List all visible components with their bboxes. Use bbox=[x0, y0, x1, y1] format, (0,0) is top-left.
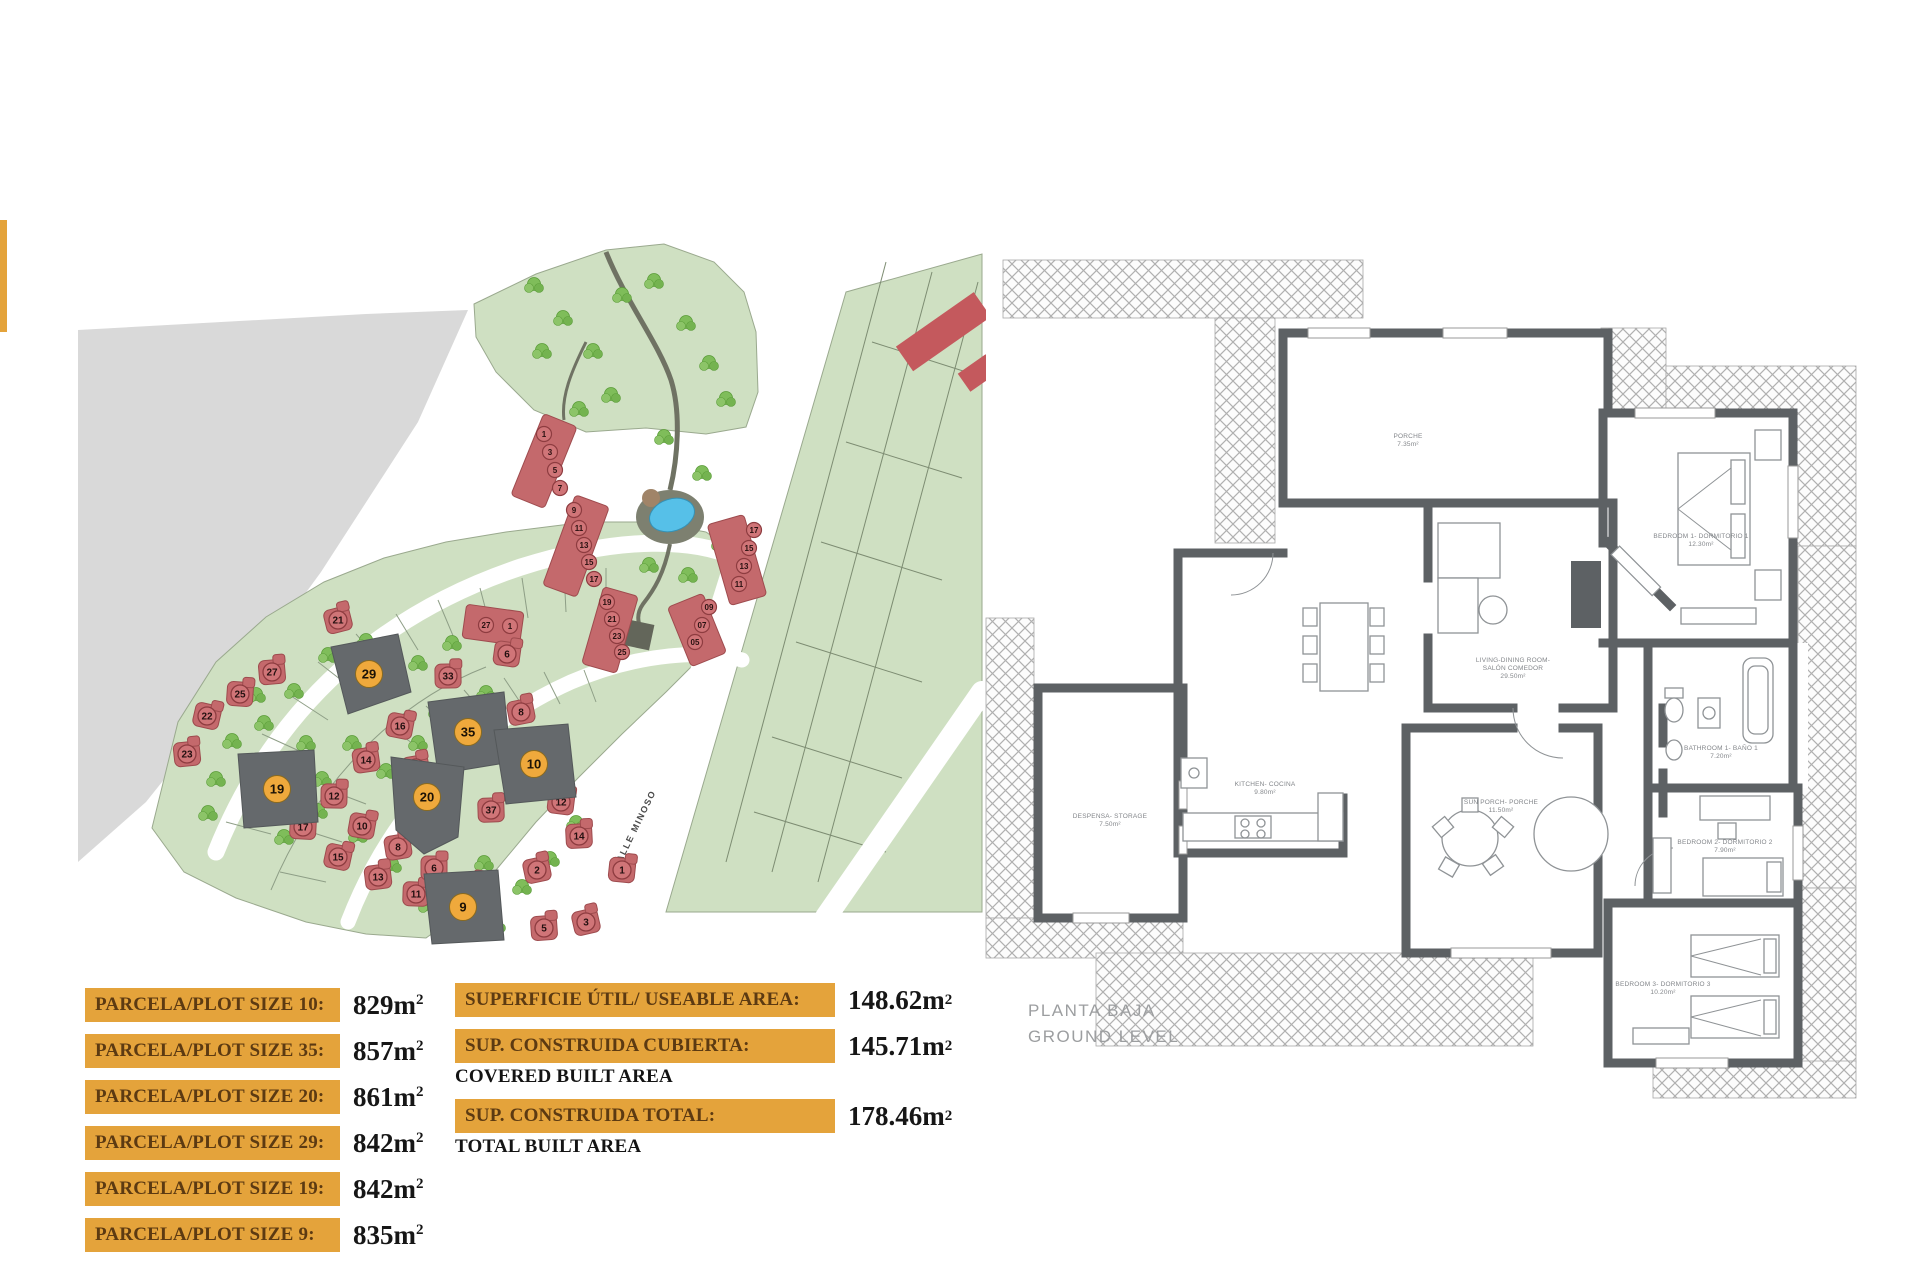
svg-text:11: 11 bbox=[411, 889, 422, 900]
svg-text:13: 13 bbox=[740, 562, 749, 571]
svg-text:09: 09 bbox=[705, 603, 714, 612]
svg-text:33: 33 bbox=[442, 671, 454, 682]
plot-size-row: PARCELA/PLOT SIZE 19: 842m2 bbox=[85, 1172, 545, 1206]
svg-text:19: 19 bbox=[603, 598, 612, 607]
townhouse-unit-21: 21 bbox=[605, 612, 620, 627]
svg-text:9: 9 bbox=[459, 900, 466, 915]
plot-size-label: PARCELA/PLOT SIZE 35: bbox=[85, 1034, 340, 1068]
house-marker-3: 3 bbox=[571, 902, 602, 936]
svg-text:6: 6 bbox=[431, 863, 437, 874]
svg-text:3: 3 bbox=[583, 917, 589, 928]
townhouse-unit-09: 09 bbox=[702, 600, 717, 615]
svg-text:35: 35 bbox=[461, 725, 475, 740]
townhouse-unit-5: 5 bbox=[548, 463, 563, 478]
plan-title-line2: GROUND LEVEL bbox=[1028, 1027, 1179, 1046]
svg-text:11: 11 bbox=[735, 580, 744, 589]
plot-size-label: PARCELA/PLOT SIZE 20: bbox=[85, 1080, 340, 1114]
townhouse-unit-27: 27 bbox=[479, 618, 494, 633]
area-label: SUP. CONSTRUIDA CUBIERTA: bbox=[455, 1029, 835, 1063]
svg-text:21: 21 bbox=[608, 615, 617, 624]
area-row: SUP. CONSTRUIDA CUBIERTA: 145.71m2 COVER… bbox=[455, 1029, 995, 1088]
site-plan-map: CALLE MINOSO 135791113151719212325171513… bbox=[66, 222, 986, 950]
plot-size-label: PARCELA/PLOT SIZE 10: bbox=[85, 988, 340, 1022]
tree-icon bbox=[693, 466, 712, 481]
highlighted-plot-19: 19 bbox=[238, 750, 318, 828]
svg-text:10: 10 bbox=[356, 821, 368, 832]
svg-text:8: 8 bbox=[518, 707, 524, 718]
svg-text:5: 5 bbox=[541, 923, 547, 934]
plot-size-label: PARCELA/PLOT SIZE 19: bbox=[85, 1172, 340, 1206]
svg-text:12: 12 bbox=[328, 791, 340, 802]
svg-text:27: 27 bbox=[266, 667, 278, 678]
svg-text:1: 1 bbox=[542, 430, 547, 439]
chimney bbox=[1571, 561, 1601, 628]
svg-text:27: 27 bbox=[482, 621, 491, 630]
svg-text:3: 3 bbox=[548, 448, 553, 457]
svg-text:05: 05 bbox=[691, 638, 700, 647]
svg-text:17: 17 bbox=[750, 526, 759, 535]
area-sublabel: COVERED BUILT AREA bbox=[455, 1066, 995, 1088]
house-marker-2: 2 bbox=[522, 850, 552, 884]
townhouse-unit-3: 3 bbox=[543, 445, 558, 460]
accent-bar bbox=[0, 220, 7, 332]
svg-text:25: 25 bbox=[618, 648, 627, 657]
svg-text:21: 21 bbox=[332, 615, 344, 626]
svg-text:8: 8 bbox=[395, 842, 401, 853]
townhouse-unit-9: 9 bbox=[567, 503, 582, 518]
svg-text:13: 13 bbox=[372, 872, 384, 883]
svg-text:9: 9 bbox=[572, 506, 577, 515]
svg-text:23: 23 bbox=[181, 749, 193, 760]
svg-text:6: 6 bbox=[504, 649, 510, 660]
townhouse-unit-11: 11 bbox=[572, 521, 587, 536]
svg-text:17: 17 bbox=[297, 822, 309, 833]
svg-text:5: 5 bbox=[553, 466, 558, 475]
svg-text:25: 25 bbox=[234, 689, 246, 700]
svg-text:11: 11 bbox=[575, 524, 584, 533]
house-marker-6: 6 bbox=[492, 637, 523, 667]
svg-text:1: 1 bbox=[619, 865, 625, 876]
svg-text:15: 15 bbox=[745, 544, 754, 553]
townhouse-unit-17: 17 bbox=[587, 572, 602, 587]
highlighted-plot-10: 10 bbox=[494, 724, 576, 804]
svg-text:20: 20 bbox=[420, 790, 434, 805]
townhouse-unit-1: 1 bbox=[537, 427, 552, 442]
svg-text:17: 17 bbox=[590, 575, 599, 584]
plot-size-label: PARCELA/PLOT SIZE 29: bbox=[85, 1126, 340, 1160]
svg-text:29: 29 bbox=[362, 667, 376, 682]
townhouse-unit-15: 15 bbox=[582, 555, 597, 570]
plot-size-row: PARCELA/PLOT SIZE 9: 835m2 bbox=[85, 1218, 545, 1252]
townhouse-unit-25: 25 bbox=[615, 645, 630, 660]
tree-icon bbox=[655, 430, 674, 445]
svg-text:15: 15 bbox=[332, 852, 344, 863]
svg-text:2: 2 bbox=[534, 865, 540, 876]
svg-text:37: 37 bbox=[485, 805, 497, 816]
svg-text:16: 16 bbox=[394, 721, 406, 732]
svg-text:10: 10 bbox=[527, 757, 541, 772]
room-label: PORCHE7.35m² bbox=[1393, 433, 1422, 448]
svg-text:13: 13 bbox=[580, 541, 589, 550]
plan-title-line1: PLANTA BAJA bbox=[1028, 1001, 1156, 1020]
svg-text:19: 19 bbox=[270, 782, 284, 797]
house-marker-1: 1 bbox=[608, 853, 638, 883]
area-row: SUPERFICIE ÚTIL/ USEABLE AREA: 148.62m2 bbox=[455, 983, 995, 1017]
svg-text:7: 7 bbox=[558, 484, 563, 493]
townhouse-unit-07: 07 bbox=[695, 618, 710, 633]
townhouse-unit-05: 05 bbox=[688, 635, 703, 650]
townhouse-unit-17: 17 bbox=[747, 523, 762, 538]
townhouse-unit-19: 19 bbox=[600, 595, 615, 610]
area-label: SUPERFICIE ÚTIL/ USEABLE AREA: bbox=[455, 983, 835, 1017]
plot-size-label: PARCELA/PLOT SIZE 9: bbox=[85, 1218, 340, 1252]
townhouse-unit-15: 15 bbox=[742, 541, 757, 556]
svg-text:1: 1 bbox=[508, 622, 513, 631]
svg-text:14: 14 bbox=[360, 755, 372, 766]
svg-text:23: 23 bbox=[613, 632, 622, 641]
townhouse-unit-11: 11 bbox=[732, 577, 747, 592]
floor-plan-drawing: PORCHE7.35m²LIVING-DINING ROOM-SALÓN COM… bbox=[973, 238, 1865, 1110]
svg-text:22: 22 bbox=[201, 711, 213, 722]
site-plan-background: CALLE MINOSO bbox=[78, 244, 986, 938]
brochure-page: CALLE MINOSO 135791113151719212325171513… bbox=[0, 0, 1920, 1280]
townhouse-unit-13: 13 bbox=[737, 559, 752, 574]
townhouse-unit-1: 1 bbox=[503, 619, 518, 634]
townhouse-unit-23: 23 bbox=[610, 629, 625, 644]
townhouse-unit-7: 7 bbox=[553, 481, 568, 496]
svg-text:07: 07 bbox=[698, 621, 707, 630]
svg-text:15: 15 bbox=[585, 558, 594, 567]
highlighted-plot-9: 9 bbox=[424, 870, 504, 944]
svg-text:14: 14 bbox=[573, 831, 585, 842]
area-row: SUP. CONSTRUIDA TOTAL: 178.46m2 TOTAL BU… bbox=[455, 1099, 995, 1158]
townhouse-unit-13: 13 bbox=[577, 538, 592, 553]
house-marker-5: 5 bbox=[530, 910, 558, 941]
built-area-table: SUPERFICIE ÚTIL/ USEABLE AREA: 148.62m2 … bbox=[455, 983, 995, 1169]
area-sublabel: TOTAL BUILT AREA bbox=[455, 1136, 995, 1158]
area-label: SUP. CONSTRUIDA TOTAL: bbox=[455, 1099, 835, 1133]
